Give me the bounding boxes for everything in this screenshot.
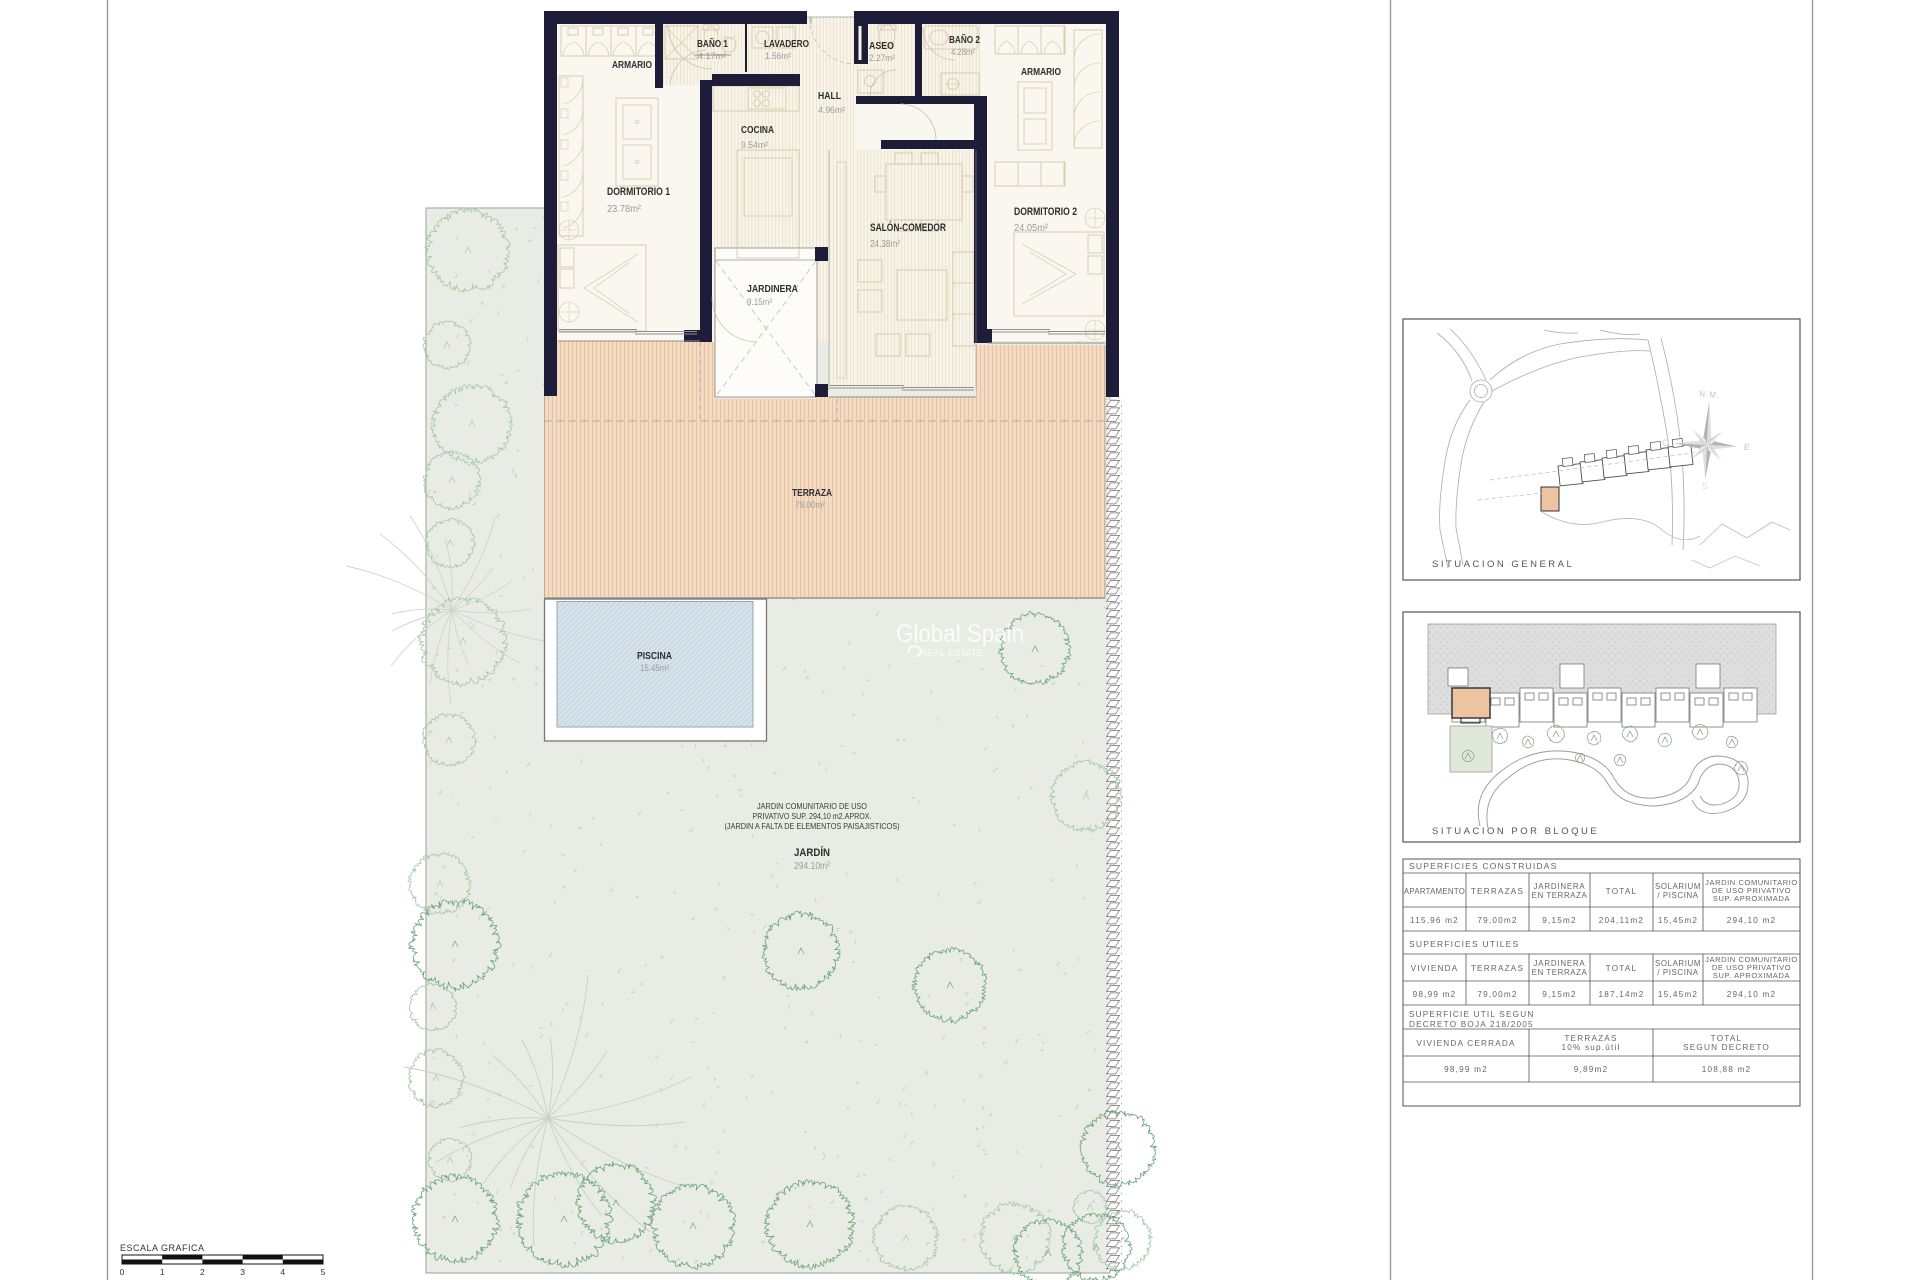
svg-text:SITUACION POR BLOQUE: SITUACION POR BLOQUE xyxy=(1432,826,1599,837)
svg-text:SOLARIUM: SOLARIUM xyxy=(1655,959,1701,968)
svg-text:115,96 m2: 115,96 m2 xyxy=(1410,916,1459,925)
svg-text:PRIVATIVO SUP. 294,10 m2.APRO: PRIVATIVO SUP. 294,10 m2.APROX. xyxy=(753,812,872,821)
svg-text:2: 2 xyxy=(200,1267,205,1277)
svg-text:COCINA: COCINA xyxy=(741,124,774,136)
svg-text:TERRAZAS: TERRAZAS xyxy=(1471,887,1524,896)
svg-text:9.15m²: 9.15m² xyxy=(747,297,772,308)
svg-text:23.78m²: 23.78m² xyxy=(607,204,642,215)
svg-text:10% sup.útil: 10% sup.útil xyxy=(1561,1043,1620,1052)
svg-text:ASEO: ASEO xyxy=(869,40,894,52)
svg-text:PISCINA: PISCINA xyxy=(637,650,672,662)
svg-text:9,15m2: 9,15m2 xyxy=(1542,916,1577,925)
svg-text:ARMARIO: ARMARIO xyxy=(612,59,652,71)
svg-text:SUP. APROXIMADA: SUP. APROXIMADA xyxy=(1713,894,1790,903)
svg-text:JARDIN COMUNITARIO DE USO: JARDIN COMUNITARIO DE USO xyxy=(757,802,867,811)
svg-text:24.38m²: 24.38m² xyxy=(870,239,901,250)
svg-text:3: 3 xyxy=(240,1267,245,1277)
svg-text:(JARDIN A FALTA DE ELEMENTOS: (JARDIN A FALTA DE ELEMENTOS PAISAJISTIC… xyxy=(725,822,900,831)
svg-text:9,89m2: 9,89m2 xyxy=(1574,1065,1609,1074)
svg-text:EN TERRAZA: EN TERRAZA xyxy=(1532,968,1588,977)
svg-text:4.28m²: 4.28m² xyxy=(951,47,975,58)
svg-text:5: 5 xyxy=(321,1267,326,1277)
svg-text:TERRAZAS: TERRAZAS xyxy=(1471,964,1524,973)
svg-text:EN TERRAZA: EN TERRAZA xyxy=(1532,891,1588,900)
svg-text:SUPERFICIE UTIL SEGUN: SUPERFICIE UTIL SEGUN xyxy=(1409,1010,1534,1019)
svg-text:108,88 m2: 108,88 m2 xyxy=(1702,1065,1752,1074)
svg-text:24.05m²: 24.05m² xyxy=(1014,223,1049,234)
svg-text:JARDINERA: JARDINERA xyxy=(1534,959,1586,968)
svg-text:ESCALA GRAFICA: ESCALA GRAFICA xyxy=(120,1243,205,1253)
svg-text:VIVIENDA CERRADA: VIVIENDA CERRADA xyxy=(1416,1039,1515,1048)
svg-text:0: 0 xyxy=(120,1267,125,1277)
svg-text:9.54m²: 9.54m² xyxy=(741,140,768,151)
svg-text:DORMITORIO 2: DORMITORIO 2 xyxy=(1014,206,1077,218)
svg-text:Global Spain: Global Spain xyxy=(896,620,1024,648)
svg-text:98,99 m2: 98,99 m2 xyxy=(1413,990,1457,999)
svg-text:204,11m2: 204,11m2 xyxy=(1599,916,1644,925)
svg-text:79.00m²: 79.00m² xyxy=(795,500,825,511)
svg-text:HALL: HALL xyxy=(818,90,841,102)
svg-text:79,00m2: 79,00m2 xyxy=(1477,990,1517,999)
svg-text:SUP. APROXIMADA: SUP. APROXIMADA xyxy=(1713,971,1790,980)
svg-text:1.56m²: 1.56m² xyxy=(765,51,791,62)
svg-text:TOTAL: TOTAL xyxy=(1606,964,1638,973)
svg-text:ARMARIO: ARMARIO xyxy=(1021,66,1061,78)
svg-text:79,00m2: 79,00m2 xyxy=(1477,916,1517,925)
svg-text:294,10 m2: 294,10 m2 xyxy=(1727,916,1777,925)
svg-text:15,45m2: 15,45m2 xyxy=(1658,916,1698,925)
svg-text:SOLARIUM: SOLARIUM xyxy=(1655,882,1701,891)
svg-text:TOTAL: TOTAL xyxy=(1606,887,1638,896)
svg-text:DECRETO BOJA 218/2005: DECRETO BOJA 218/2005 xyxy=(1409,1020,1534,1029)
svg-text:BAÑO 1: BAÑO 1 xyxy=(697,37,728,50)
svg-text:O: O xyxy=(1662,438,1670,448)
svg-text:4: 4 xyxy=(280,1267,285,1277)
svg-text:JARDINERA: JARDINERA xyxy=(1534,882,1586,891)
svg-text:9,15m2: 9,15m2 xyxy=(1542,990,1577,999)
svg-text:294.10m²: 294.10m² xyxy=(794,861,831,872)
svg-text:REAL ESTATE: REAL ESTATE xyxy=(921,648,983,659)
svg-text:APARTAMENTO: APARTAMENTO xyxy=(1404,887,1465,896)
svg-text:TERRAZA: TERRAZA xyxy=(792,487,832,499)
svg-text:BAÑO 2: BAÑO 2 xyxy=(949,33,980,46)
svg-text:SEGUN DECRETO: SEGUN DECRETO xyxy=(1683,1043,1770,1052)
svg-text:SUPERFICIES CONSTRUIDAS: SUPERFICIES CONSTRUIDAS xyxy=(1409,861,1558,871)
svg-text:15,45m2: 15,45m2 xyxy=(1658,990,1698,999)
svg-text:4.17m²: 4.17m² xyxy=(698,51,726,62)
svg-text:N.M.: N.M. xyxy=(1699,390,1720,400)
svg-text:JARDÍN: JARDÍN xyxy=(794,846,830,859)
svg-text:E: E xyxy=(1744,442,1751,452)
svg-text:187,14m2: 187,14m2 xyxy=(1598,990,1644,999)
svg-text:/ PISCINA: / PISCINA xyxy=(1657,968,1698,977)
svg-text:4.96m²: 4.96m² xyxy=(818,105,845,116)
svg-text:JARDINERA: JARDINERA xyxy=(747,283,798,295)
svg-text:DORMITORIO 1: DORMITORIO 1 xyxy=(607,186,670,198)
svg-text:/ PISCINA: / PISCINA xyxy=(1657,891,1698,900)
svg-text:VIVIENDA: VIVIENDA xyxy=(1411,964,1459,973)
svg-text:SUPERFICIES UTILES: SUPERFICIES UTILES xyxy=(1409,939,1519,949)
svg-text:15.45m²: 15.45m² xyxy=(640,663,669,674)
svg-text:2.27m²: 2.27m² xyxy=(869,53,895,64)
svg-text:TERRAZAS: TERRAZAS xyxy=(1564,1034,1617,1043)
svg-text:S: S xyxy=(1702,481,1709,491)
svg-text:98,99 m2: 98,99 m2 xyxy=(1444,1065,1488,1074)
svg-text:294,10 m2: 294,10 m2 xyxy=(1727,990,1777,999)
svg-text:LAVADERO: LAVADERO xyxy=(764,38,809,50)
svg-text:SITUACION GENERAL: SITUACION GENERAL xyxy=(1432,559,1574,570)
svg-text:SALÓN-COMEDOR: SALÓN-COMEDOR xyxy=(870,221,946,234)
svg-text:TOTAL: TOTAL xyxy=(1711,1034,1743,1043)
svg-text:1: 1 xyxy=(160,1267,165,1277)
